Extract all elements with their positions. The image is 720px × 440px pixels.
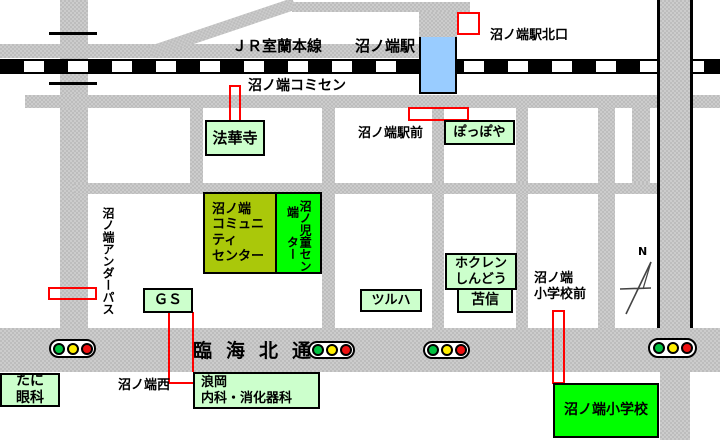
signal-red-lamp xyxy=(455,344,467,356)
station-building xyxy=(419,37,457,94)
signal-yellow-lamp xyxy=(326,344,338,356)
station-area-map: 法華寺 ぽっぽや 沼ノ端 コミュニ ティ センター 沼ノ端 児童センター ＧＳ … xyxy=(0,0,720,440)
label-jr-line: ＪＲ室蘭本線 xyxy=(232,37,322,56)
marker-underpass xyxy=(48,287,97,300)
road-vertical-hokuren-east xyxy=(516,107,528,328)
road-middle xyxy=(74,183,692,194)
box-tomashin-label: 苫信 xyxy=(471,292,499,309)
box-hokuren-shindo-label: ホクレン しんどう xyxy=(455,256,507,287)
marker-hokkeji-connector xyxy=(229,85,241,122)
label-school-front: 沼ノ端 小学校前 xyxy=(534,271,586,304)
box-tani-eye-clinic: たに 眼科 xyxy=(0,373,60,407)
road-vertical-center-east xyxy=(322,107,335,328)
label-station-front: 沼ノ端駅前 xyxy=(358,126,423,142)
label-numanohata-nishi: 沼ノ端西 xyxy=(118,378,170,394)
road-overpass-east xyxy=(660,0,690,440)
label-station: 沼ノ端駅 xyxy=(355,37,415,56)
traffic-light-center-west xyxy=(308,341,355,359)
signal-green-lamp xyxy=(427,344,439,356)
box-jido-center-label-left: 児童センター xyxy=(286,224,311,272)
traffic-light-center-east xyxy=(423,341,470,359)
label-rinkai-kita-dori: 臨海北通 xyxy=(193,340,325,364)
box-elementary-school-label: 沼ノ端小学校 xyxy=(564,402,648,419)
signal-yellow-lamp xyxy=(441,344,453,356)
label-comisen: 沼ノ端コミセン xyxy=(248,78,346,96)
overpass-east-edge xyxy=(690,0,693,328)
box-namioka-clinic: 浪岡 内科・消化器科 xyxy=(193,372,320,409)
traffic-light-west xyxy=(49,339,96,358)
compass-north-arrow xyxy=(612,240,660,320)
box-tsuruha-label: ツルハ xyxy=(371,293,410,309)
label-underpass: 沼ノ端アンダーパス xyxy=(100,207,115,319)
box-poppoya-label: ぽっぽや xyxy=(453,125,505,141)
box-gas-station: ＧＳ xyxy=(143,288,193,313)
label-station-north-exit: 沼ノ端駅北口 xyxy=(490,28,568,44)
underpass-south-edge xyxy=(49,82,97,85)
box-namioka-clinic-label: 浪岡 内科・消化器科 xyxy=(201,375,292,406)
signal-green-lamp xyxy=(653,342,665,354)
box-gas-station-label: ＧＳ xyxy=(154,292,182,309)
marker-station-front xyxy=(408,107,469,121)
box-hokkeji: 法華寺 xyxy=(205,120,265,156)
road-top xyxy=(292,2,470,12)
road-vertical-hokkeji-west xyxy=(190,107,203,194)
marker-station-north-exit xyxy=(457,12,480,35)
signal-red-lamp xyxy=(681,342,693,354)
road-rinkai-kita-dori xyxy=(0,328,720,372)
road-vertical-short-east xyxy=(632,107,650,194)
signal-green-lamp xyxy=(53,343,65,355)
signal-green-lamp xyxy=(312,344,324,356)
box-jido-center-label-right: 沼ノ端 xyxy=(286,200,311,224)
signal-red-lamp xyxy=(81,343,93,355)
marker-school-front xyxy=(552,310,565,384)
road-station-plaza xyxy=(419,12,457,39)
box-community-center: 沼ノ端 コミュニ ティ センター xyxy=(203,192,277,274)
box-hokkeji-label: 法華寺 xyxy=(212,129,257,147)
box-community-center-label: 沼ノ端 コミュニ ティ センター xyxy=(212,202,264,264)
box-poppoya: ぽっぽや xyxy=(444,120,515,145)
signal-yellow-lamp xyxy=(667,342,679,354)
traffic-light-east xyxy=(648,338,697,358)
road-station-front xyxy=(25,95,720,108)
box-tomashin: 苫信 xyxy=(457,288,513,313)
box-elementary-school: 沼ノ端小学校 xyxy=(553,383,659,438)
marker-gs-connector-left xyxy=(168,312,170,384)
marker-gs-connector-bottom xyxy=(168,382,194,384)
box-hokuren-shindo: ホクレン しんどう xyxy=(445,253,517,290)
railway-jr-muroran-line xyxy=(0,59,720,74)
road-vertical-poppoya-east xyxy=(432,107,444,328)
box-tani-eye-clinic-label: たに 眼科 xyxy=(16,373,44,407)
underpass-north-edge xyxy=(49,32,97,35)
signal-red-lamp xyxy=(340,344,352,356)
box-jido-center: 沼ノ端 児童センター xyxy=(275,192,322,274)
signal-yellow-lamp xyxy=(67,343,79,355)
box-tsuruha: ツルハ xyxy=(360,289,422,312)
